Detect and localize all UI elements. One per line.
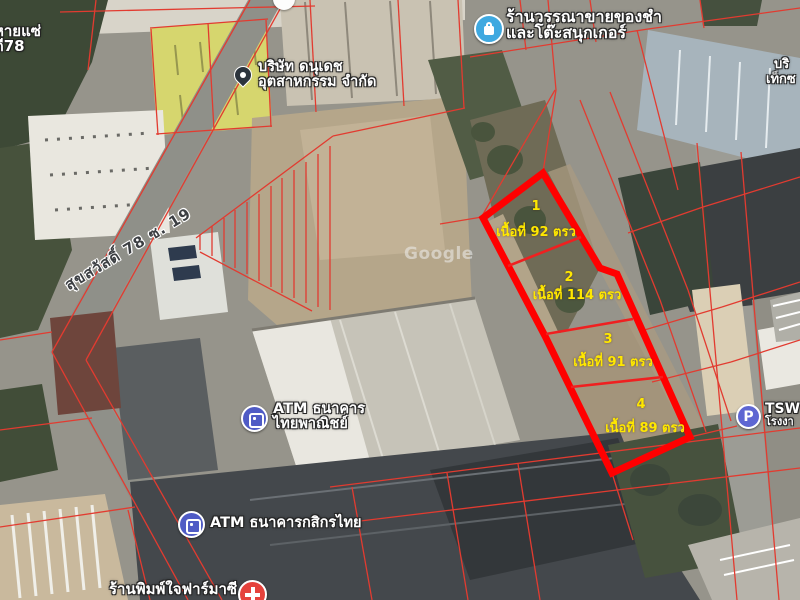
poi-company-line1: บริษัท ดนุเดช <box>258 60 376 75</box>
edge-right-line1: บริ <box>774 58 789 71</box>
edge-right-line2: เท็กซ <box>766 73 796 86</box>
plot-4-number: 4 <box>636 397 645 412</box>
plot-3-area: เนื้อที่ 91 ตรว <box>573 351 653 372</box>
parking-glyph: P <box>743 409 753 425</box>
poi-atm-scb-line2: ไทยพาณิชย์ <box>273 417 365 432</box>
plot-4-area: เนื้อที่ 89 ตรว <box>605 417 685 438</box>
parking-icon[interactable]: P <box>736 404 761 429</box>
plot-2-number: 2 <box>564 270 573 285</box>
poi-atm-scb-line1: ATM ธนาคาร <box>273 402 365 417</box>
terrain <box>0 0 800 600</box>
poi-parking-label[interactable]: TSW โรงงา <box>765 402 800 427</box>
satellite-imagery <box>0 0 800 600</box>
store-icon[interactable] <box>474 14 504 44</box>
poi-parking-sub: โรงงา <box>765 416 800 427</box>
poi-atm-scb-label[interactable]: ATM ธนาคาร ไทยพาณิชย์ <box>273 402 365 432</box>
poi-pharmacy-line1: ร้านพิมพ์ใจฟาร์มาซี <box>109 582 237 597</box>
poi-edge-left-label: หายแซ่ ดี78 <box>0 24 41 55</box>
plot-1-area: เนื้อที่ 92 ตรว <box>496 221 576 242</box>
plot-2-area: เนื้อที่ 114 ตรว <box>533 284 622 305</box>
plot-1-number: 1 <box>531 199 540 214</box>
atm-icon[interactable] <box>178 511 205 538</box>
poi-pharmacy-label[interactable]: ร้านพิมพ์ใจฟาร์มาซี <box>109 582 237 597</box>
poi-company-line2: อุตสาหกรรม จำกัด <box>258 75 376 90</box>
plot-3-number: 3 <box>603 332 612 347</box>
poi-atm-kbank-line1: ATM ธนาคารกสิกรไทย <box>210 516 362 531</box>
edge-left-line2: ดี78 <box>0 39 41 54</box>
google-watermark: Google <box>404 244 474 264</box>
poi-grocery-line2: และโต๊ะสนุกเกอร์ <box>506 25 662 41</box>
poi-grocery-label[interactable]: ร้านวรรณาขายของชำ และโต๊ะสนุกเกอร์ <box>506 9 662 42</box>
poi-atm-kbank-label[interactable]: ATM ธนาคารกสิกรไทย <box>210 516 362 531</box>
satellite-map[interactable]: 1 เนื้อที่ 92 ตรว 2 เนื้อที่ 114 ตรว 3 เ… <box>0 0 800 600</box>
atm-icon[interactable] <box>241 405 268 432</box>
poi-company-label[interactable]: บริษัท ดนุเดช อุตสาหกรรม จำกัด <box>258 60 376 90</box>
